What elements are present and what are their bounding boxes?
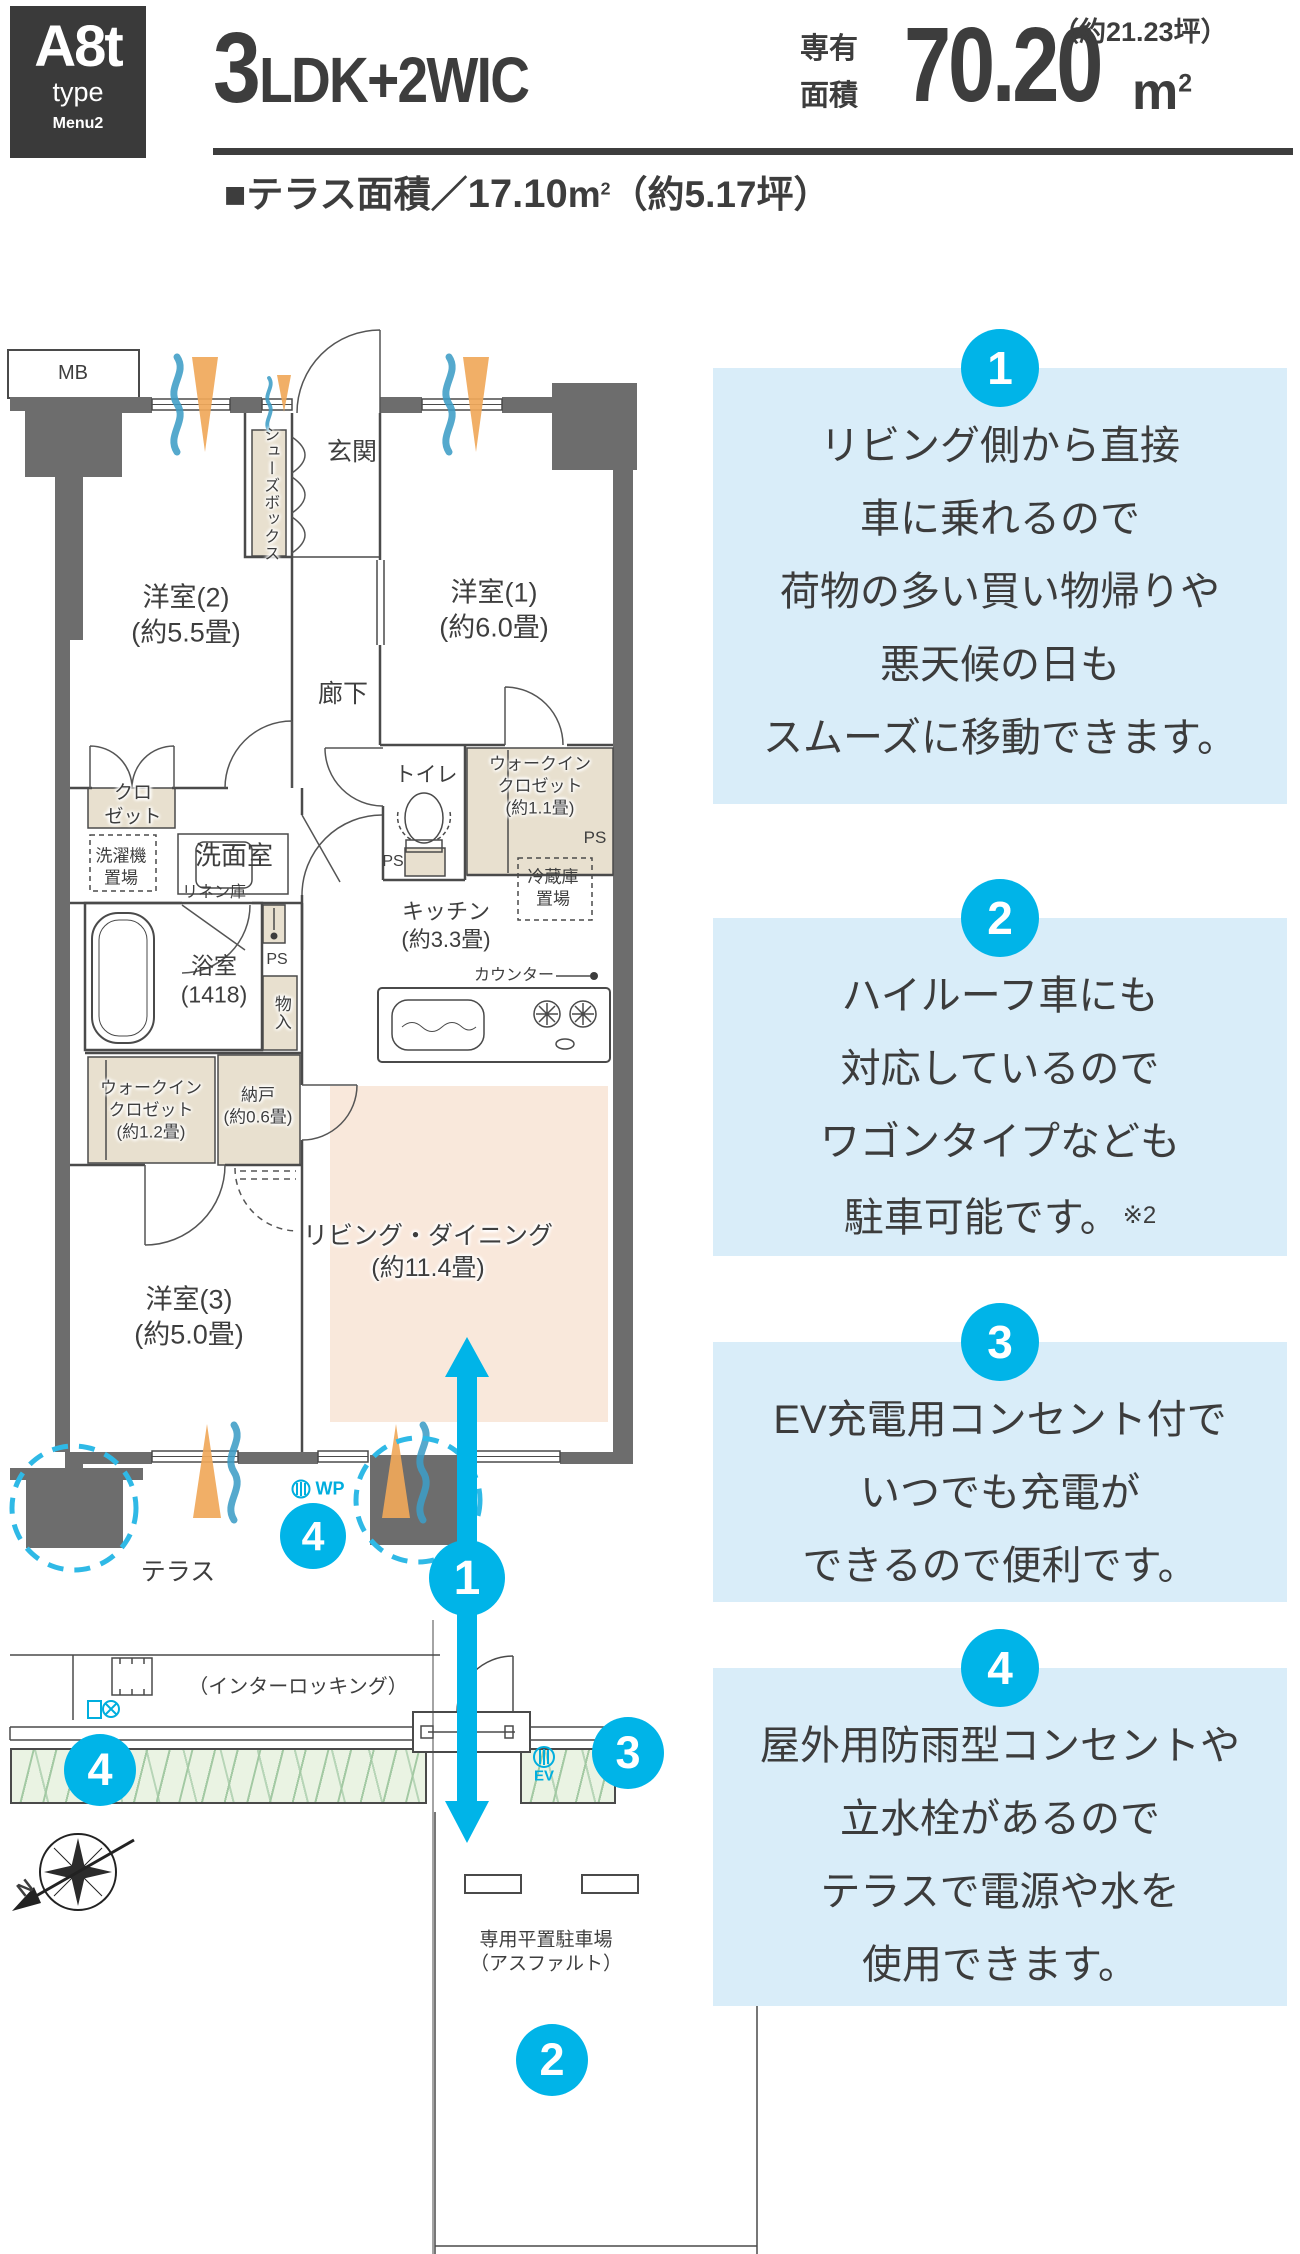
ev-outlet-icon [534,1747,554,1767]
storage-areas [88,430,613,1165]
washer-space [90,835,156,891]
outdoor [10,1620,757,2254]
info-text-3: EV充電用コンセント付でいつでも充電ができるので便利です。 [713,1342,1287,1603]
folding-door-dashed [235,1168,298,1231]
stove-icon [534,1001,596,1049]
toilet-icon [398,793,451,852]
mb-box [8,350,139,398]
compass-icon [12,1834,134,1911]
info-number-2: 2 [961,879,1039,957]
info-block-2: 2ハイルーフ車にも対応しているのでワゴンタイプなども駐車可能です。※2 [713,918,1287,1256]
info-number-1: 1 [961,329,1039,407]
kitchen-sink-icon [392,1000,484,1050]
bathtub-icon [92,913,154,1043]
info-block-1: 1リビング側から直接車に乗れるので荷物の多い買い物帰りや悪天候の日もスムーズに移… [713,368,1287,804]
info-text-2: ハイルーフ車にも対応しているのでワゴンタイプなども駐車可能です。※2 [713,918,1287,1255]
info-text-1: リビング側から直接車に乗れるので荷物の多い買い物帰りや悪天候の日もスムーズに移動… [713,368,1287,775]
counter-dot [590,972,598,980]
info-block-3: 3EV充電用コンセント付でいつでも充電ができるので便利です。 [713,1342,1287,1602]
parking-outline [435,1742,757,2254]
info-number-3: 3 [961,1303,1039,1381]
info-block-4: 4屋外用防雨型コンセントや立水栓があるのでテラスで電源や水を使用できます。 [713,1668,1287,2006]
info-number-4: 4 [961,1629,1039,1707]
wp-faucet-icon [293,1481,310,1498]
cyan-annotations [12,1337,554,1843]
vanity-icon [178,834,288,894]
ps-dot [271,933,278,940]
water-tap-icon [88,1701,119,1718]
info-text-4: 屋外用防雨型コンセントや立水栓があるのでテラスで電源や水を使用できます。 [713,1668,1287,2002]
floorplan-page: A8t type Menu2 3LDK+2WIC 専有 面積 70.20 m2 … [0,0,1300,2254]
